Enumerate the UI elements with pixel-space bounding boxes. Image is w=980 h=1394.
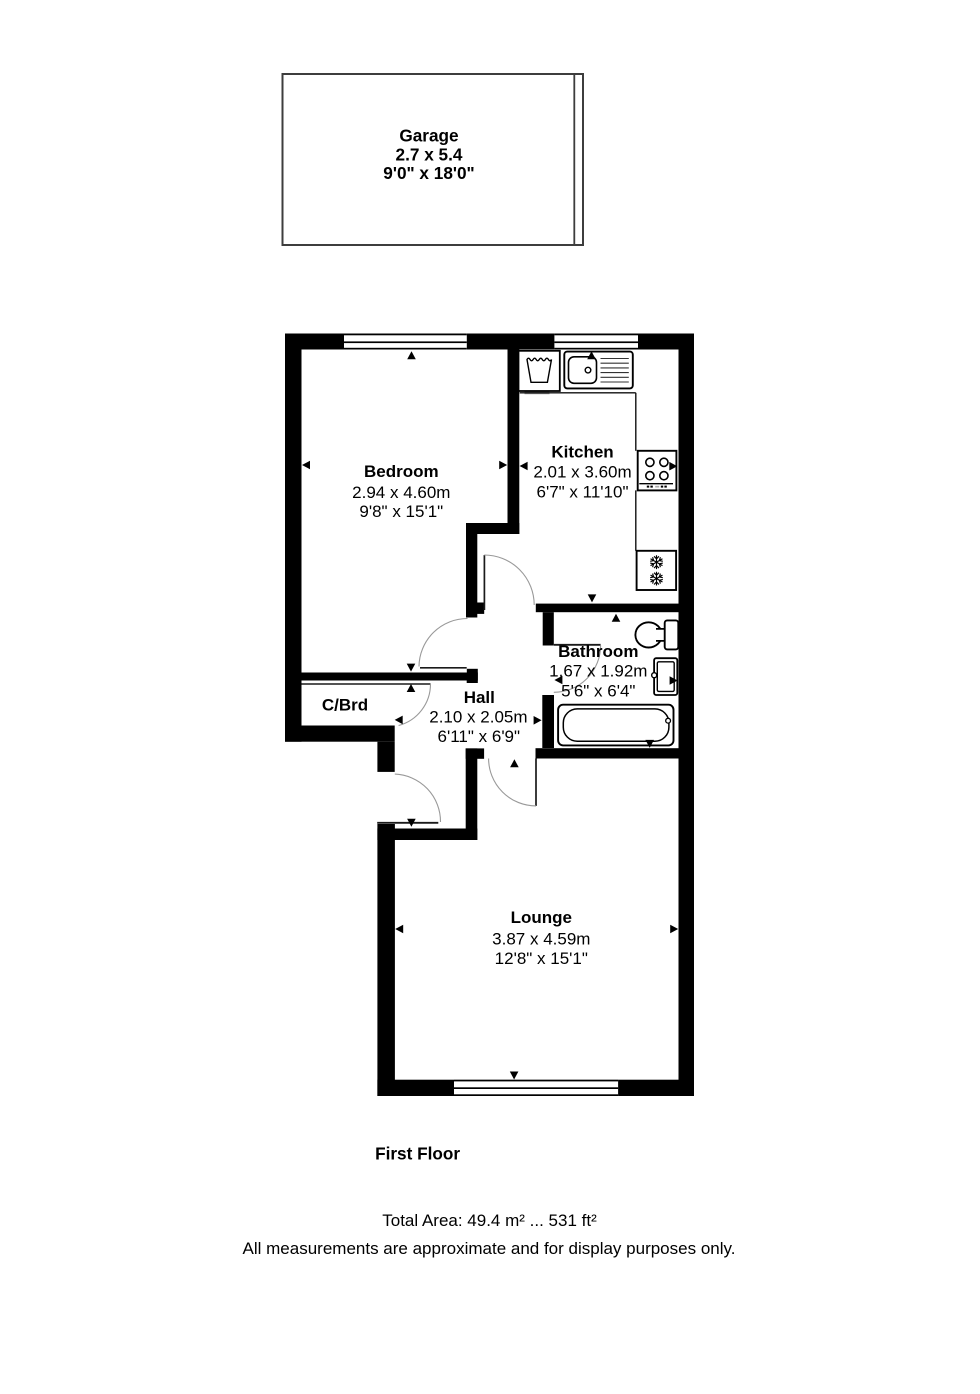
- svg-text:2.94 x 4.60m: 2.94 x 4.60m: [352, 483, 450, 502]
- svg-text:2.7 x 5.4: 2.7 x 5.4: [396, 144, 463, 164]
- svg-text:Lounge: Lounge: [511, 908, 572, 927]
- svg-text:Hall: Hall: [464, 688, 495, 707]
- svg-text:12'8" x 15'1": 12'8" x 15'1": [495, 949, 588, 968]
- svg-text:C/Brd: C/Brd: [322, 696, 368, 715]
- svg-text:Garage: Garage: [399, 126, 458, 146]
- svg-text:Total Area: 49.4 m² ... 531 ft: Total Area: 49.4 m² ... 531 ft²: [382, 1211, 597, 1230]
- svg-text:9'0" x 18'0": 9'0" x 18'0": [383, 163, 474, 183]
- svg-text:Bedroom: Bedroom: [364, 462, 439, 481]
- svg-text:1.67 x 1.92m: 1.67 x 1.92m: [549, 662, 647, 681]
- svg-text:First Floor: First Floor: [375, 1143, 460, 1163]
- svg-text:3.87 x 4.59m: 3.87 x 4.59m: [492, 929, 590, 948]
- svg-text:2.10 x 2.05m: 2.10 x 2.05m: [429, 707, 527, 726]
- svg-text:All measurements are approxima: All measurements are approximate and for…: [243, 1239, 736, 1258]
- svg-text:Kitchen: Kitchen: [551, 443, 613, 462]
- svg-text:9'8" x 15'1": 9'8" x 15'1": [359, 502, 443, 521]
- svg-text:2.01 x 3.60m: 2.01 x 3.60m: [533, 463, 631, 482]
- svg-text:6'7" x 11'10": 6'7" x 11'10": [537, 483, 629, 502]
- svg-text:6'11" x 6'9": 6'11" x 6'9": [438, 727, 521, 746]
- svg-text:Bathroom: Bathroom: [558, 642, 638, 661]
- svg-text:5'6" x 6'4": 5'6" x 6'4": [561, 681, 635, 700]
